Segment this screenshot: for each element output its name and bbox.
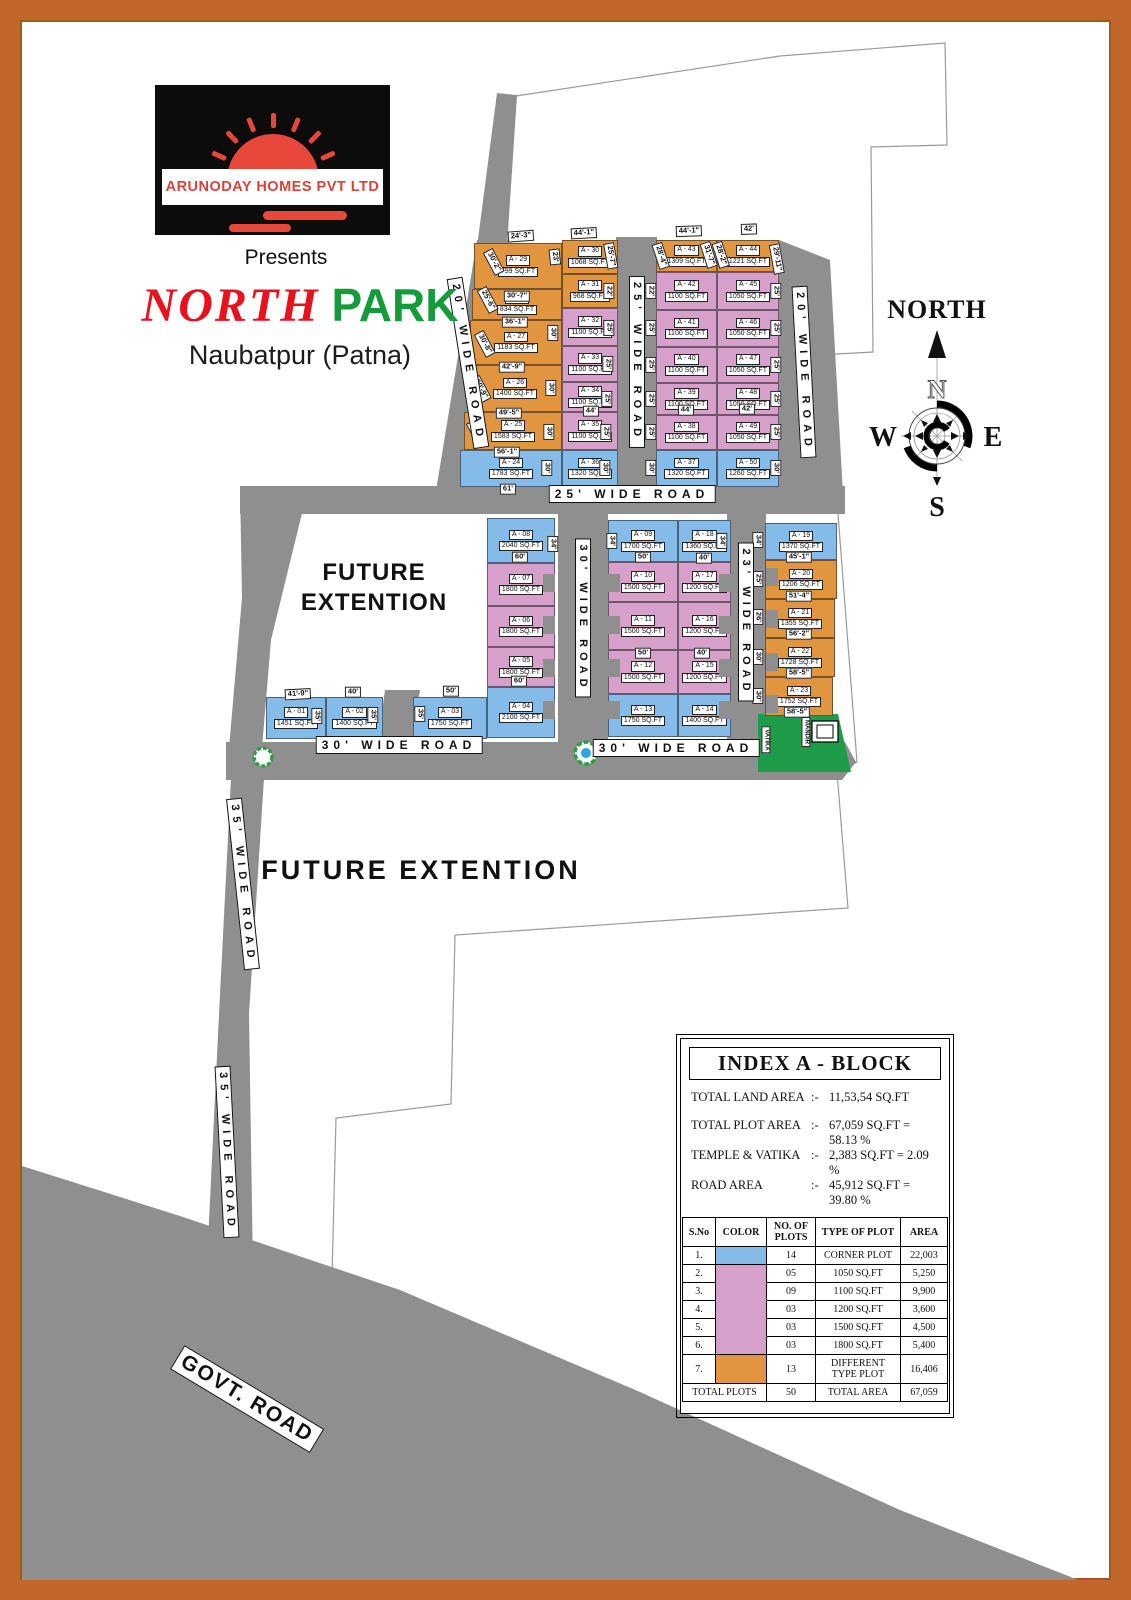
- south-arrow-icon: [933, 477, 941, 486]
- total-plots-value: 50: [767, 1384, 816, 1401]
- company-logo: ARUNODAY HOMES PVT LTD: [155, 85, 390, 235]
- total-area-value: 67,059: [901, 1384, 947, 1401]
- stat-label: TOTAL PLOT AREA: [691, 1118, 811, 1148]
- table-row: 4. 03 1200 SQ.FT 3,600: [683, 1301, 947, 1319]
- sun-ray-icon: [246, 117, 256, 133]
- table-area-cell: 9,900: [901, 1283, 947, 1301]
- table-sno-cell: 4.: [683, 1301, 716, 1319]
- table-sno-cell: 1.: [683, 1247, 716, 1265]
- stat-value: 11,53,54 SQ.FT: [829, 1090, 939, 1105]
- map-base-layer: [0, 0, 1131, 1600]
- table-header-cell: AREA: [901, 1218, 947, 1247]
- title-north: NORTH: [142, 279, 320, 332]
- compass-point-icon: [933, 450, 941, 458]
- table-header-cell: NO. OF PLOTS: [767, 1218, 816, 1247]
- table-header-row: S.NoCOLORNO. OF PLOTSTYPE OF PLOTAREA: [683, 1218, 947, 1247]
- stat-separator: :-: [811, 1118, 829, 1148]
- stat-row: ROAD AREA :- 45,912 SQ.FT = 39.80 %: [691, 1178, 939, 1208]
- compass-point-icon: [951, 432, 959, 440]
- stat-separator: :-: [811, 1090, 829, 1105]
- table-row: 2. 05 1050 SQ.FT 5,250: [683, 1265, 947, 1283]
- table-area-cell: 22,003: [901, 1247, 947, 1265]
- table-type-cell: 1200 SQ.FT: [816, 1301, 901, 1319]
- sun-ray-icon: [271, 113, 276, 128]
- mandir-box-inner: [817, 725, 833, 738]
- stat-separator: :-: [811, 1178, 829, 1208]
- stat-row: TOTAL PLOT AREA :- 67,059 SQ.FT = 58.13 …: [691, 1118, 939, 1148]
- road-25-mid-vertical: [616, 237, 657, 512]
- stat-value: 45,912 SQ.FT = 39.80 %: [829, 1178, 939, 1208]
- color-swatch-cell: [716, 1283, 767, 1301]
- roundabout-west-ring: [254, 748, 272, 766]
- table-area-cell: 5,400: [901, 1337, 947, 1355]
- project-location: Naubatpur (Patna): [85, 340, 515, 371]
- west-arrow-icon: [903, 432, 911, 440]
- table-type-cell: DIFFERENT TYPE PLOT: [816, 1355, 901, 1384]
- stat-separator: :-: [811, 1148, 829, 1178]
- logo-underline-bar: [263, 211, 347, 220]
- sun-ray-icon: [225, 130, 239, 144]
- table-type-cell: 1800 SQ.FT: [816, 1337, 901, 1355]
- table-area-cell: 5,250: [901, 1265, 947, 1283]
- compass-n-letter: N: [928, 375, 947, 404]
- sun-ray-icon: [319, 150, 335, 161]
- stat-label: ROAD AREA: [691, 1178, 811, 1208]
- project-title: NORTHPARK: [85, 278, 515, 333]
- stat-label: TEMPLE & VATIKA: [691, 1148, 811, 1178]
- table-area-cell: 3,600: [901, 1301, 947, 1319]
- compass-east-label: E: [984, 422, 1003, 453]
- site-plan-poster: A - 29 799 SQ.FT A - 28 834 SQ.FT A - 27…: [0, 0, 1131, 1600]
- index-panel: INDEX A - BLOCK TOTAL LAND AREA :- 11,53…: [680, 1038, 950, 1414]
- table-sno-cell: 3.: [683, 1283, 716, 1301]
- table-plots-cell: 03: [767, 1301, 816, 1319]
- table-plots-cell: 13: [767, 1355, 816, 1384]
- road-35-segment1: [219, 778, 264, 1014]
- table-header-cell: COLOR: [716, 1218, 767, 1247]
- color-swatch-cell: [716, 1355, 767, 1384]
- table-sno-cell: 2.: [683, 1265, 716, 1283]
- color-swatch-cell: [716, 1265, 767, 1283]
- table-sno-cell: 6.: [683, 1337, 716, 1355]
- table-plots-cell: 14: [767, 1247, 816, 1265]
- road-25-horizontal: [240, 486, 845, 514]
- north-arrow-icon: [928, 330, 946, 358]
- stat-row: TOTAL LAND AREA :- 11,53,54 SQ.FT: [691, 1090, 939, 1105]
- compass-point-icon: [933, 414, 941, 422]
- table-plots-cell: 03: [767, 1319, 816, 1337]
- table-type-cell: 1050 SQ.FT: [816, 1265, 901, 1283]
- table-sno-cell: 5.: [683, 1319, 716, 1337]
- compass-rose: NORTH N W E S: [857, 286, 1017, 536]
- stat-value: 67,059 SQ.FT = 58.13 %: [829, 1118, 939, 1148]
- presents-text: Presents: [166, 246, 406, 270]
- table-plots-cell: 09: [767, 1283, 816, 1301]
- stat-label: TOTAL LAND AREA: [691, 1090, 811, 1105]
- road-left-bend: [229, 487, 304, 748]
- table-type-cell: CORNER PLOT: [816, 1247, 901, 1265]
- table-row: 5. 03 1500 SQ.FT 4,500: [683, 1319, 947, 1337]
- compass-point-icon: [915, 432, 923, 440]
- table-row: 7. 13 DIFFERENT TYPE PLOT 16,406: [683, 1355, 947, 1384]
- color-swatch-cell: [716, 1337, 767, 1355]
- table-sno-cell: 7.: [683, 1355, 716, 1384]
- table-type-cell: 1500 SQ.FT: [816, 1319, 901, 1337]
- table-area-cell: 16,406: [901, 1355, 947, 1384]
- compass-north-label: NORTH: [887, 295, 986, 324]
- table-header-cell: S.No: [683, 1218, 716, 1247]
- compass-west-label: W: [869, 422, 897, 453]
- road-30-vertical: [558, 510, 608, 748]
- color-swatch-cell: [716, 1301, 767, 1319]
- sun-ray-icon: [290, 117, 300, 133]
- logo-band: ARUNODAY HOMES PVT LTD: [162, 169, 383, 205]
- sun-ray-icon: [307, 130, 321, 144]
- logo-underline-bar: [229, 224, 291, 232]
- total-plots-label: TOTAL PLOTS: [683, 1384, 767, 1401]
- index-title: INDEX A - BLOCK: [689, 1047, 941, 1080]
- table-plots-cell: 03: [767, 1337, 816, 1355]
- stat-row: TEMPLE & VATIKA :- 2,383 SQ.FT = 2.09 %: [691, 1148, 939, 1178]
- compass-south-label: S: [929, 492, 945, 523]
- total-area-label: TOTAL AREA: [816, 1384, 901, 1401]
- table-header-cell: TYPE OF PLOT: [816, 1218, 901, 1247]
- table-row: 6. 03 1800 SQ.FT 5,400: [683, 1337, 947, 1355]
- table-row: 1. 14 CORNER PLOT 22,003: [683, 1247, 947, 1265]
- sun-ray-icon: [211, 150, 227, 161]
- road-20-right-vertical: [769, 240, 844, 512]
- road-stub-bottom-row: [378, 690, 420, 742]
- index-stats: TOTAL LAND AREA :- 11,53,54 SQ.FT TOTAL …: [691, 1090, 939, 1208]
- table-row: 3. 09 1100 SQ.FT 9,900: [683, 1283, 947, 1301]
- plot-type-table: S.NoCOLORNO. OF PLOTSTYPE OF PLOTAREA 1.…: [682, 1217, 948, 1402]
- color-swatch-cell: [716, 1319, 767, 1337]
- company-name: ARUNODAY HOMES PVT LTD: [166, 179, 380, 195]
- title-park: PARK: [332, 279, 459, 331]
- road-top-stub: [477, 93, 517, 247]
- color-swatch-cell: [716, 1247, 767, 1265]
- table-type-cell: 1100 SQ.FT: [816, 1283, 901, 1301]
- table-area-cell: 4,500: [901, 1319, 947, 1337]
- table-total-row: TOTAL PLOTS 50 TOTAL AREA 67,059: [683, 1384, 947, 1401]
- roundabout-mid-center: [581, 748, 591, 758]
- table-plots-cell: 05: [767, 1265, 816, 1283]
- stat-value: 2,383 SQ.FT = 2.09 %: [829, 1148, 939, 1178]
